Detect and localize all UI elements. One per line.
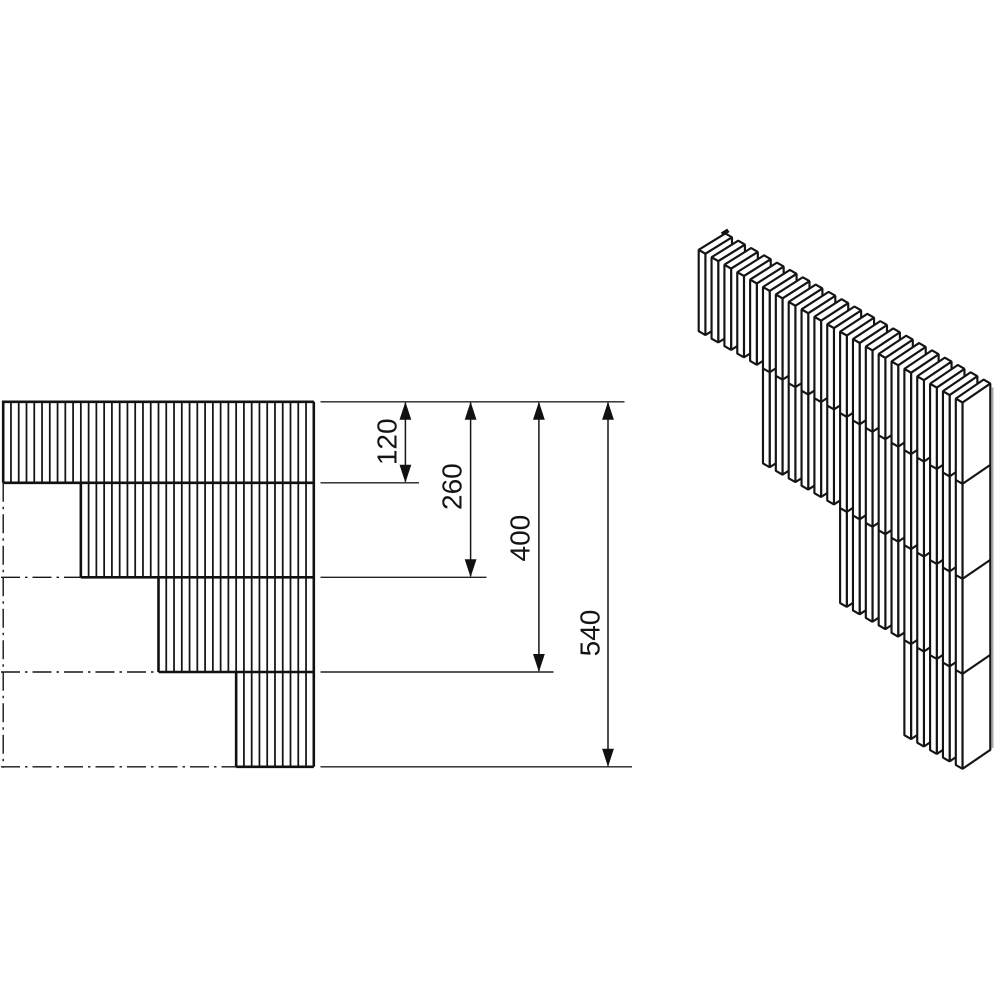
svg-text:540: 540	[575, 610, 606, 657]
svg-text:260: 260	[437, 463, 468, 510]
svg-text:120: 120	[372, 418, 403, 465]
svg-text:400: 400	[505, 515, 536, 562]
